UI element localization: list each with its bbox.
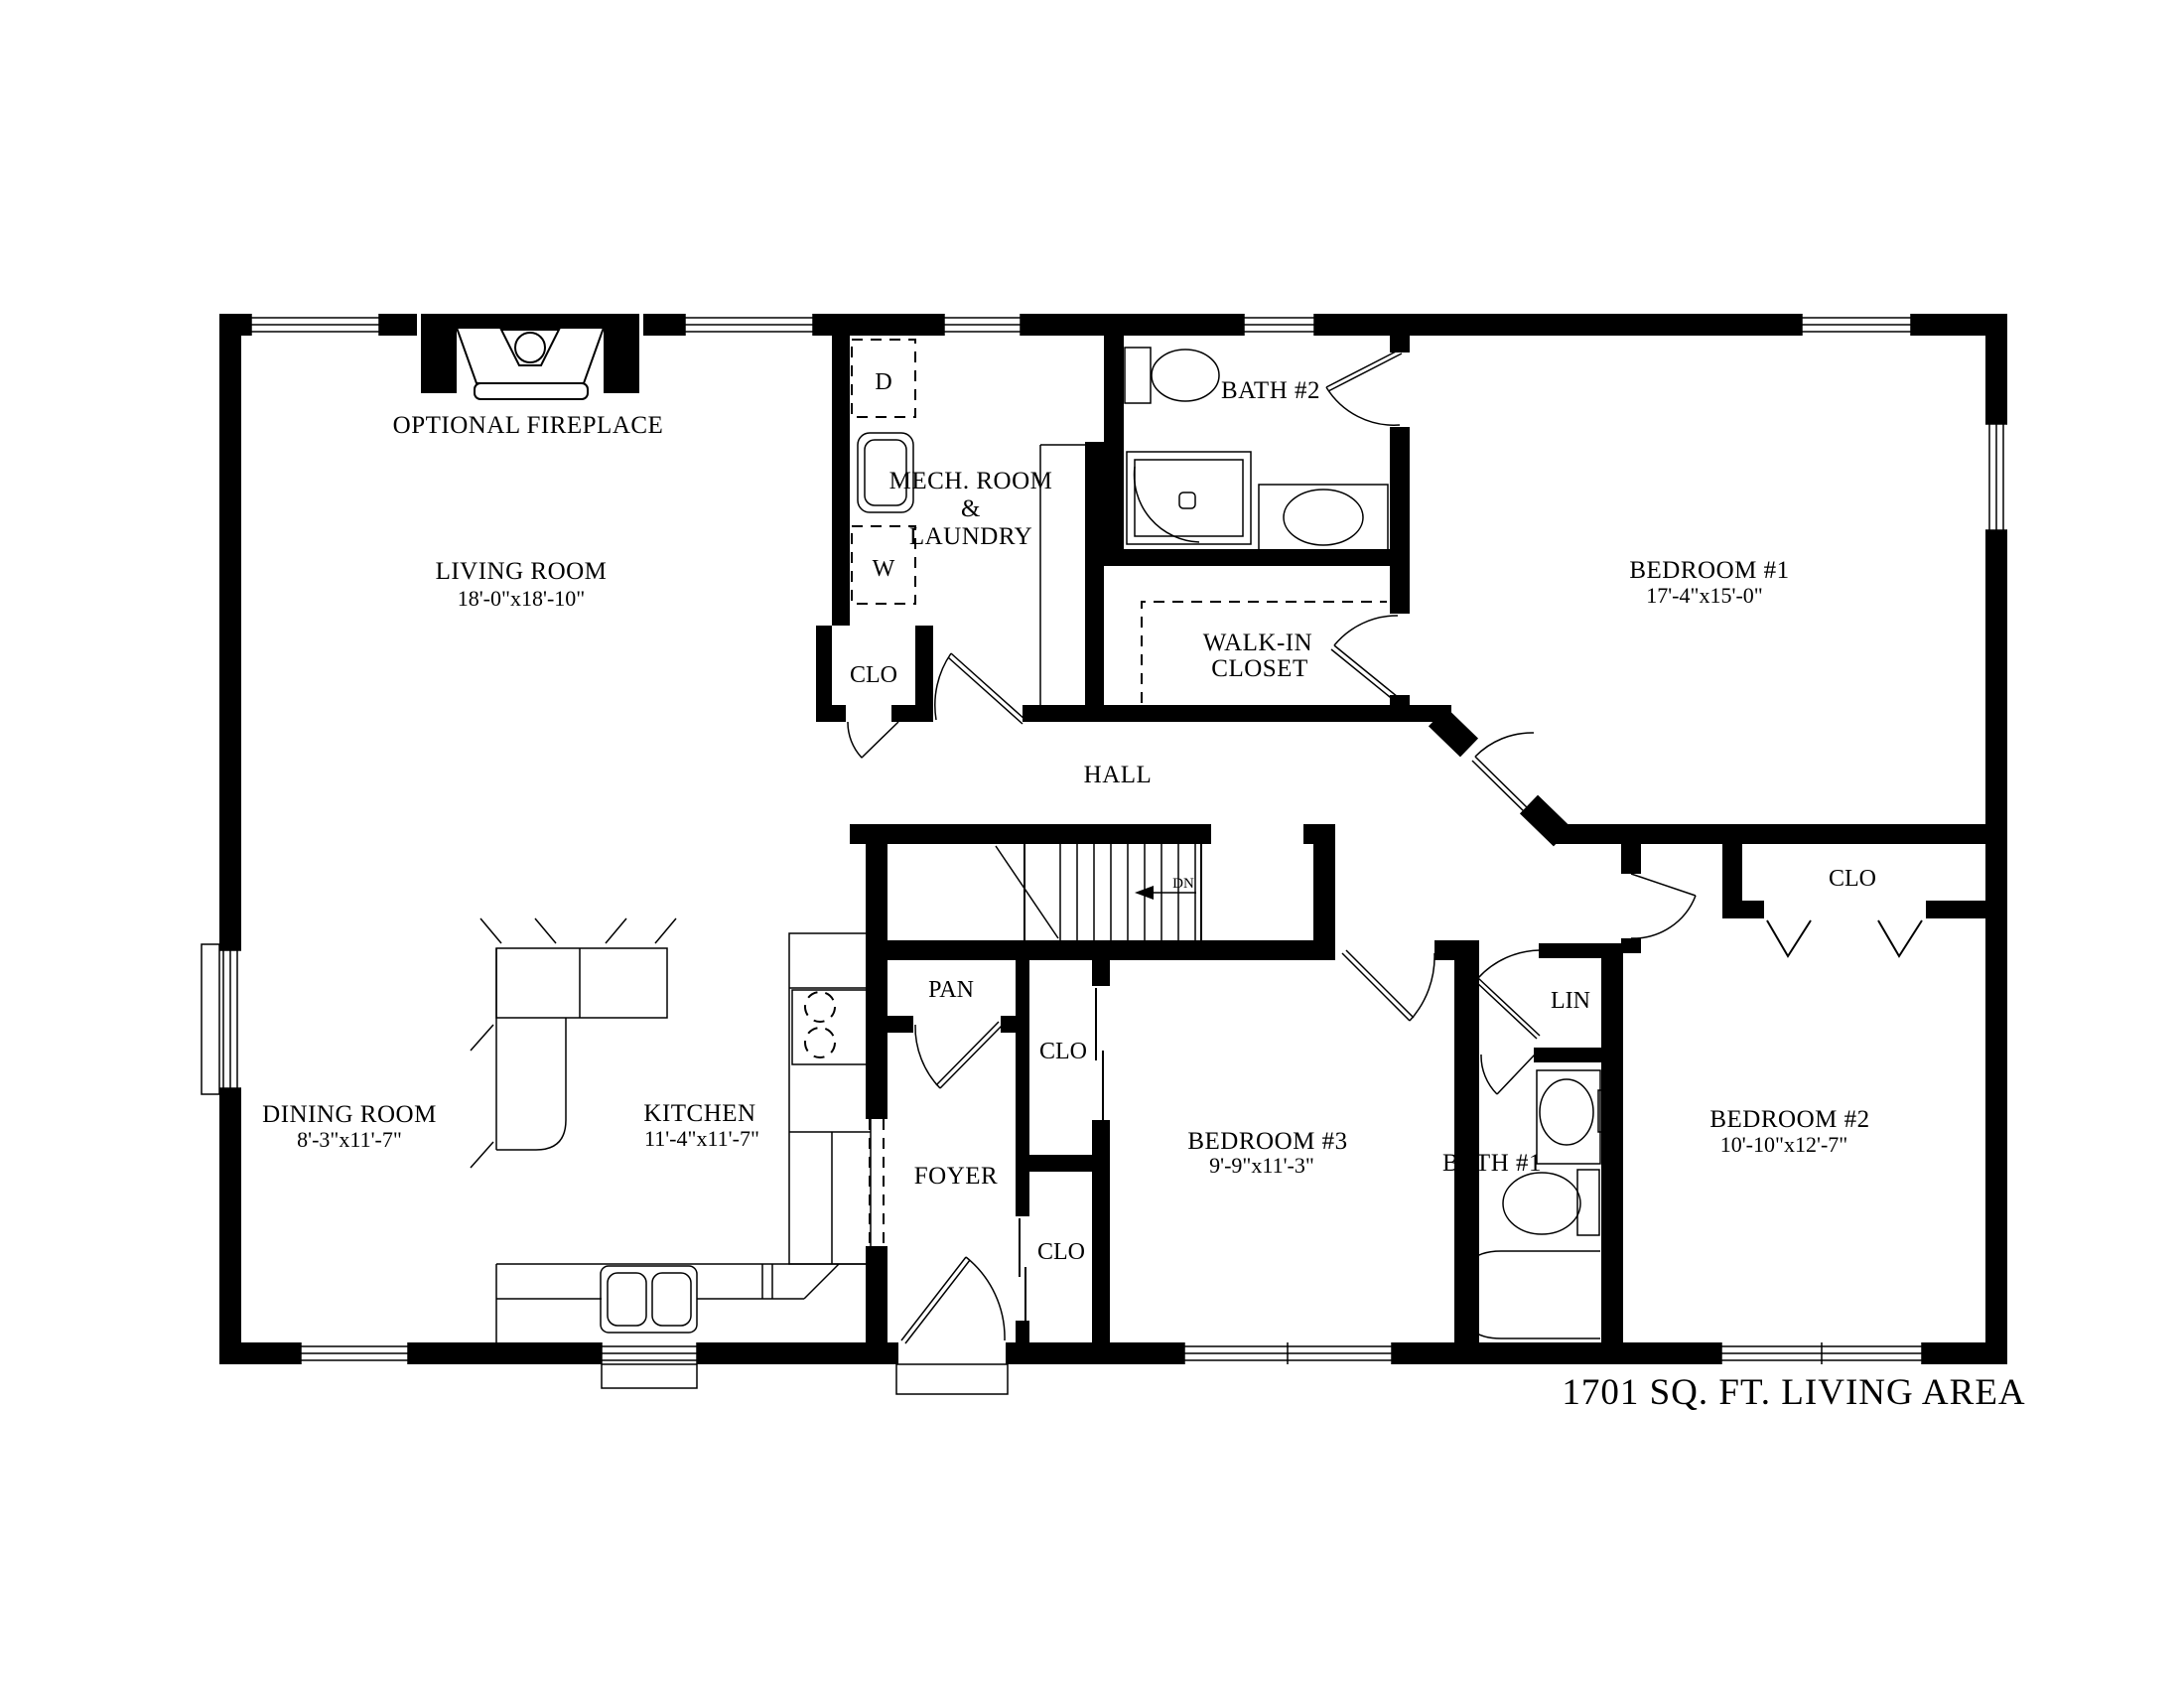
label-washer: W — [873, 556, 895, 582]
label-walkin-1: WALK-IN — [1203, 630, 1312, 656]
label-dryer: D — [875, 369, 891, 395]
dims-living-room: 18'-0"x18'-10" — [458, 586, 586, 611]
label-closet-mech: CLO — [850, 662, 897, 688]
kitchen-counter-east — [789, 933, 871, 1264]
dims-kitchen: 11'-4"x11'-7" — [644, 1126, 759, 1151]
bath2-door — [1326, 350, 1402, 425]
front-door — [901, 1257, 1005, 1343]
shower — [1127, 452, 1251, 544]
dims-bedroom1: 17'-4"x15'-0" — [1646, 583, 1763, 608]
label-bedroom1: BEDROOM #1 — [1629, 557, 1789, 584]
label-pantry: PAN — [928, 977, 974, 1003]
toilet-tank — [1125, 348, 1151, 403]
doors — [848, 350, 1922, 1343]
vanity — [1537, 1070, 1600, 1164]
vanity — [1259, 485, 1388, 552]
label-linen: LIN — [1551, 988, 1590, 1014]
bathtub — [1463, 1251, 1600, 1338]
label-bath2: BATH #2 — [1221, 377, 1320, 404]
floor-plan-drawing: OPTIONAL FIREPLACE LIVING ROOM 18'-0"x18… — [0, 0, 2184, 1688]
kitchen-sink — [601, 1266, 697, 1333]
label-hall: HALL — [1084, 762, 1153, 788]
toilet-bowl — [1503, 1173, 1580, 1234]
burner — [805, 992, 835, 1022]
range — [792, 990, 871, 1064]
label-down: DN — [1172, 876, 1194, 892]
dims-dining-room: 8'-3"x11'-7" — [297, 1127, 402, 1152]
label-walkin-2: CLOSET — [1211, 655, 1307, 682]
bifold-doors — [1767, 920, 1922, 956]
label-dining-room: DINING ROOM — [262, 1101, 437, 1128]
label-bedroom3: BEDROOM #3 — [1187, 1128, 1347, 1155]
bedroom3-door — [1342, 950, 1434, 1021]
dims-bedroom3: 9'-9"x11'-3" — [1209, 1153, 1314, 1178]
floor-plan-page: OPTIONAL FIREPLACE LIVING ROOM 18'-0"x18… — [0, 0, 2184, 1688]
label-bath1: BATH #1 — [1442, 1150, 1542, 1177]
closet-door — [848, 722, 898, 758]
label-optional-fireplace: OPTIONAL FIREPLACE — [393, 412, 664, 439]
pantry-door — [915, 1022, 1003, 1088]
sliding-door-foyer-closet — [1020, 1218, 1025, 1321]
toilet-bowl — [1152, 350, 1219, 401]
dims-bedroom2: 10'-10"x12'-7" — [1720, 1132, 1848, 1157]
label-kitchen: KITCHEN — [643, 1100, 755, 1127]
walkin-door — [1331, 616, 1398, 701]
mech-room-door — [935, 653, 1025, 724]
label-closet-bedroom2: CLO — [1829, 866, 1876, 892]
label-living-room: LIVING ROOM — [436, 558, 608, 585]
label-closet-foyer: CLO — [1037, 1239, 1085, 1265]
bath1-door — [1481, 1055, 1535, 1094]
label-bedroom2: BEDROOM #2 — [1709, 1106, 1869, 1133]
bath1-fixtures — [1463, 1070, 1610, 1338]
stairs — [996, 844, 1201, 940]
shower-door-arc — [1135, 467, 1199, 542]
label-mech-room-1: MECH. ROOM — [889, 468, 1053, 494]
pass-through-dashed — [870, 1119, 884, 1246]
linen-door — [1475, 950, 1540, 1039]
bedroom1-door — [1472, 733, 1534, 816]
label-foyer: FOYER — [914, 1163, 998, 1190]
sink-basin — [1284, 490, 1363, 545]
burner — [805, 1028, 835, 1057]
shower-drain — [1179, 492, 1195, 508]
bedroom2-door — [1631, 874, 1696, 938]
label-mech-room-2: & — [961, 495, 981, 522]
label-square-footage: 1701 SQ. FT. LIVING AREA — [1562, 1372, 2025, 1413]
fireplace — [417, 314, 643, 399]
sliding-door-bedroom3-closet — [1096, 988, 1103, 1120]
label-closet-bedroom3: CLO — [1039, 1039, 1087, 1064]
label-mech-room-3: LAUNDRY — [909, 523, 1032, 550]
sink-basin — [1540, 1079, 1593, 1145]
